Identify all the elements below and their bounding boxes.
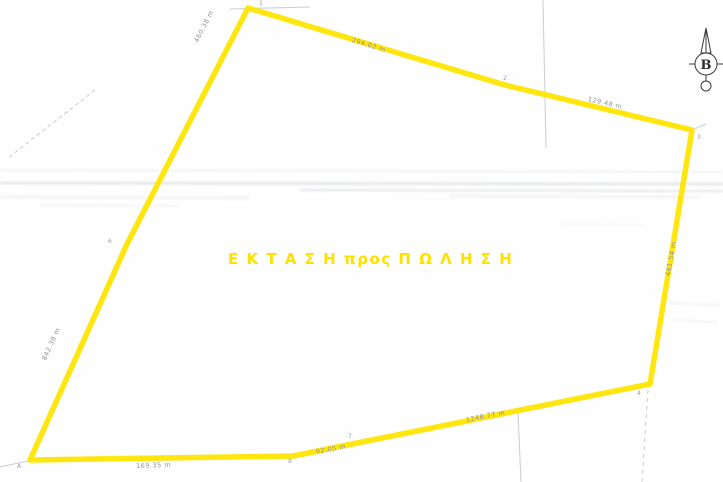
faint-cadastral-lines bbox=[0, 0, 706, 482]
vertex-label-7: 7 bbox=[348, 433, 352, 440]
sale-caption: Ε Κ Τ Α Σ Η προς Π Ω Λ Η Σ Η bbox=[228, 250, 498, 268]
vertex-label-4: 4 bbox=[637, 390, 641, 397]
vertex-label-A: A bbox=[17, 463, 21, 470]
vertex-label-8: 8 bbox=[288, 458, 292, 465]
survey-plan-canvas: B Ε Κ Τ Α Σ Η προς Π Ω Λ Η Σ Η 460.38 m … bbox=[0, 0, 723, 482]
scan-smudges bbox=[0, 170, 723, 322]
vertex-label-2: 2 bbox=[503, 75, 507, 82]
vertex-label-6: 6 bbox=[108, 238, 112, 245]
north-arrow: B bbox=[689, 28, 723, 91]
parcel-boundary-highlight bbox=[30, 8, 692, 460]
north-arrow-base-loop bbox=[701, 81, 711, 91]
north-arrow-letter: B bbox=[701, 58, 712, 73]
vertex-label-1: 1 bbox=[259, 0, 263, 7]
edge-label-8-A: 169.35 m bbox=[136, 461, 171, 470]
vertex-label-3: 3 bbox=[697, 134, 701, 141]
